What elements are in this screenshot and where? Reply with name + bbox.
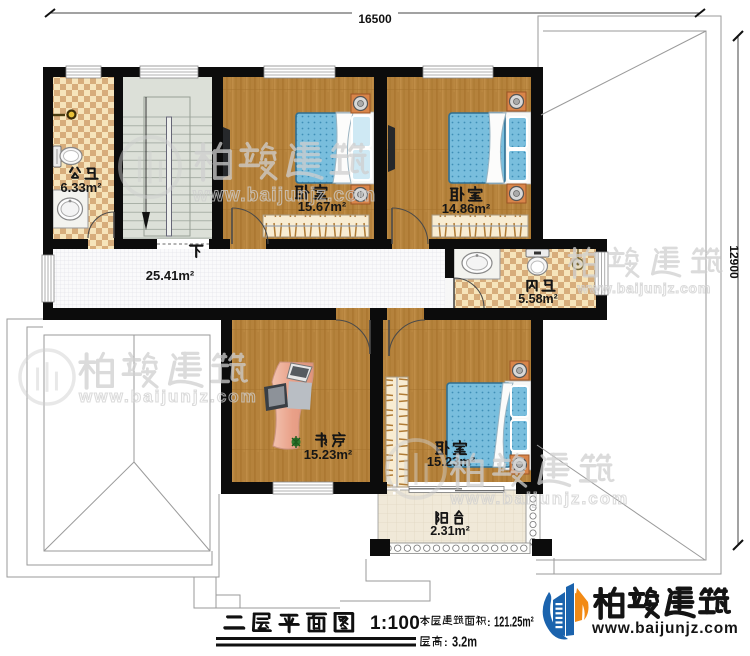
svg-text:5.58m²: 5.58m² <box>518 292 558 306</box>
svg-text:15.23m²: 15.23m² <box>304 447 353 462</box>
svg-text:16500: 16500 <box>358 12 392 26</box>
svg-text:12900: 12900 <box>727 245 741 279</box>
svg-text:6.33m²: 6.33m² <box>60 180 102 195</box>
svg-text:2.31m²: 2.31m² <box>430 524 470 538</box>
svg-text::: : <box>487 617 491 629</box>
svg-text:www.baijunjz.com: www.baijunjz.com <box>577 280 712 296</box>
svg-text:25.41m²: 25.41m² <box>146 268 195 283</box>
svg-text:3.2m: 3.2m <box>452 633 477 650</box>
svg-text:www.baijunjz.com: www.baijunjz.com <box>591 620 739 637</box>
svg-text:www.baijunjz.com: www.baijunjz.com <box>78 387 258 406</box>
svg-text::: : <box>444 637 448 649</box>
svg-text:www.baijunjz.com: www.baijunjz.com <box>450 489 630 508</box>
svg-text:1:100: 1:100 <box>370 613 420 634</box>
svg-text:121.25m²: 121.25m² <box>494 613 534 630</box>
svg-text:14.86m²: 14.86m² <box>442 201 491 216</box>
svg-text:www.baijunjz.com: www.baijunjz.com <box>192 185 376 206</box>
